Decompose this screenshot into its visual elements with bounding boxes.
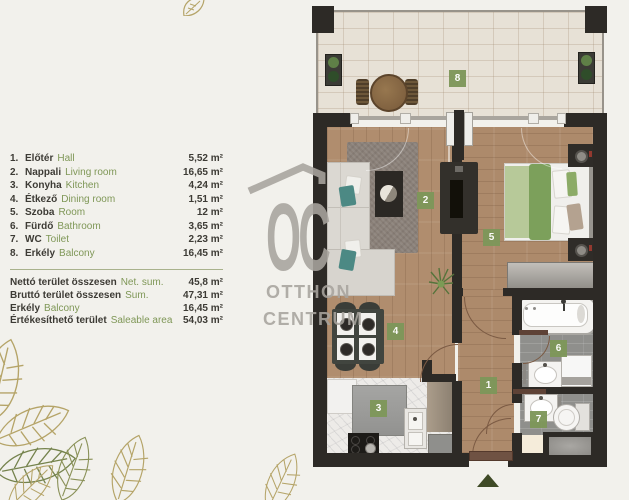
glazing-post [350, 113, 359, 124]
nightstand [568, 144, 593, 167]
placemat [359, 338, 376, 360]
washbasin [528, 361, 562, 389]
planter [325, 54, 342, 86]
entrance-door-leaf [469, 451, 513, 461]
room-marker-kitchen: 3 [370, 400, 387, 417]
entrance-arrow-icon [477, 474, 499, 487]
potted-plant [426, 266, 456, 298]
balcony-table [370, 74, 408, 112]
stove [348, 433, 379, 454]
wall-bedroom-bath [512, 288, 593, 300]
door-lintel [519, 330, 548, 335]
door-lintel [513, 389, 546, 394]
toilet-bowl [553, 404, 580, 431]
door-post [464, 112, 473, 146]
room-marker-balcony: 8 [449, 70, 466, 87]
placemat [359, 313, 376, 335]
kitchen-sink [404, 408, 427, 449]
planter [578, 52, 595, 84]
wall-hall-wc [512, 433, 522, 455]
glazing-post [400, 113, 411, 124]
shaft-panel [549, 437, 591, 455]
room-marker-hall: 1 [480, 377, 497, 394]
sofa-pillow-teal [339, 185, 357, 207]
placemat [337, 338, 354, 360]
coffee-table [375, 171, 403, 217]
glazing-post [557, 113, 566, 124]
bed [504, 163, 595, 241]
door-divider [454, 110, 464, 160]
washing-machine [561, 355, 592, 387]
placemat [337, 313, 354, 335]
room-marker-bedroom: 5 [483, 229, 500, 246]
balcony-chair [356, 79, 369, 105]
hall-cabinet [427, 379, 452, 432]
nightstand [568, 238, 593, 261]
floor-plan: 1 2 3 4 5 6 7 8 [0, 0, 629, 500]
room-marker-living: 2 [417, 192, 434, 209]
wall-right [593, 113, 607, 467]
wardrobe [507, 262, 595, 291]
room-marker-dining: 4 [387, 323, 404, 340]
room-marker-wc: 7 [530, 411, 547, 428]
room-marker-bathroom: 6 [550, 340, 567, 357]
balcony-pillar [585, 6, 607, 33]
balcony-pillar [312, 6, 334, 33]
tv-unit [440, 162, 478, 234]
wall-left [313, 113, 327, 467]
wall-kitchen-hall [452, 381, 462, 455]
towel-rail [523, 364, 526, 384]
floorplan-page: 1.ElőtérHall5,52 m² 2.NappaliLiving room… [0, 0, 629, 500]
glazing-post [528, 113, 539, 124]
wall-bottom-left [313, 453, 469, 467]
wall-hall-bath [512, 363, 522, 403]
